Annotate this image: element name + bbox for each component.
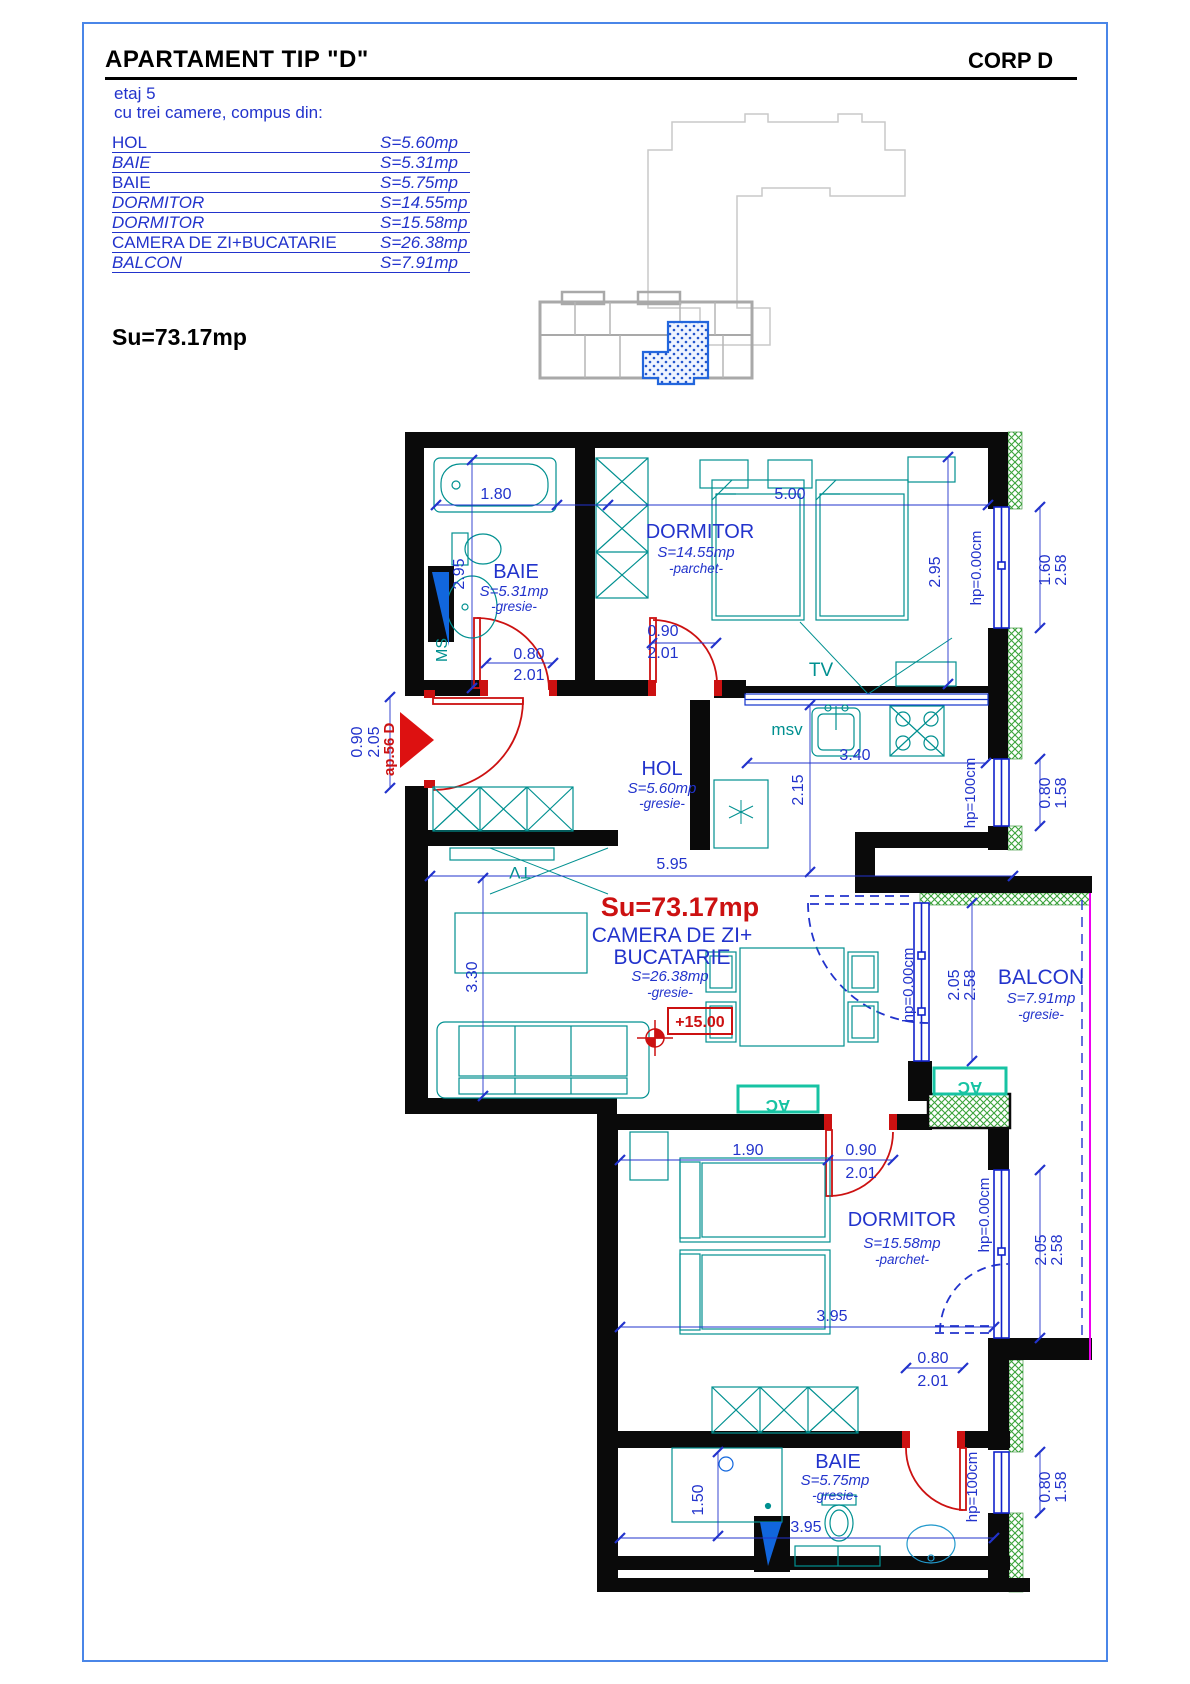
dim-label: 0.80 xyxy=(917,1350,948,1367)
beds-dormitor2 xyxy=(680,1158,830,1334)
key-plan-highlighted-unit xyxy=(643,322,708,384)
dim-label: 0.80 xyxy=(1037,1471,1054,1502)
hol-closet xyxy=(433,787,573,831)
dim-label: hp=0.00cm xyxy=(968,531,985,606)
kitchen-counter xyxy=(745,694,988,705)
kitchen-sink-label: msv xyxy=(771,720,803,739)
room-finish-living: -gresie- xyxy=(647,985,693,1000)
room-area-dormitor1: S=14.55mp xyxy=(657,544,734,561)
hatched-wall-block xyxy=(928,1094,1010,1128)
stove xyxy=(890,706,944,756)
room-name-baie1: BAIE xyxy=(493,561,539,583)
door-dormitor2 xyxy=(826,1130,893,1196)
room-name-living2: BUCATARIE xyxy=(613,946,730,969)
drawing-sheet: APARTAMENT TIP "D" CORP D etaj 5 cu trei… xyxy=(0,0,1190,1684)
dim-label: 5.95 xyxy=(656,856,687,873)
room-name-dormitor1: DORMITOR xyxy=(646,521,755,543)
dim-label: 2.58 xyxy=(1053,554,1070,585)
window-dormitor1 xyxy=(994,507,1009,628)
dim-label: 3.40 xyxy=(839,747,870,764)
dim-label: 2.05 xyxy=(1033,1234,1050,1265)
dim-label: 2.01 xyxy=(917,1373,948,1390)
dim-label: hp=0.00cm xyxy=(976,1178,993,1253)
room-area-dormitor2: S=15.58mp xyxy=(863,1235,940,1252)
dim-label: 1.80 xyxy=(480,486,511,503)
beds-dormitor1 xyxy=(712,480,908,620)
plan-total-area: Su=73.17mp xyxy=(601,892,759,922)
entry-door xyxy=(433,698,523,790)
tv-leader-lines xyxy=(800,622,952,694)
dim-label: 0.80 xyxy=(513,646,544,663)
door-baie2 xyxy=(906,1448,966,1510)
room-finish-dormitor2: -parchet- xyxy=(875,1252,930,1267)
dim-label: 5.00 xyxy=(774,486,805,503)
entry-arrow xyxy=(400,712,434,768)
room-name-baie2: BAIE xyxy=(815,1451,861,1473)
washing-machine-label: MS xyxy=(434,638,451,662)
bathtub xyxy=(434,458,556,512)
tv-cabinet-dormitor1 xyxy=(896,662,956,686)
room-area-living: S=26.38mp xyxy=(631,968,708,985)
tv-label-dormitor1: TV xyxy=(809,660,834,681)
dim-label: hp=100cm xyxy=(964,1452,981,1522)
window-baie2 xyxy=(994,1452,1009,1513)
dim-label: 2.15 xyxy=(790,774,807,805)
apartment-number-label: ap.56 D xyxy=(381,722,398,776)
dim-label: 2.01 xyxy=(845,1165,876,1182)
room-area-baie2: S=5.75mp xyxy=(801,1472,870,1489)
floor-plan-drawing: 1.80 5.00 2.95 2.95 0.90 2.01 0.80 2.01 … xyxy=(0,0,1190,1684)
ac-label-balcony: AC xyxy=(958,1078,983,1097)
room-name-hol: HOL xyxy=(641,758,682,780)
tv-stand-living xyxy=(450,848,554,860)
room-finish-baie2: -gresie- xyxy=(812,1488,858,1503)
ac-label-living: AC xyxy=(766,1096,791,1115)
dim-label: 2.01 xyxy=(513,667,544,684)
dim-label: 2.58 xyxy=(1049,1234,1066,1265)
dim-label: 3.30 xyxy=(464,961,481,992)
room-name-balcon: BALCON xyxy=(998,966,1084,989)
room-area-hol: S=5.60mp xyxy=(628,780,697,797)
nightstands-dormitor1 xyxy=(700,457,955,488)
dim-label: 1.50 xyxy=(690,1484,707,1515)
dim-label: 1.58 xyxy=(1053,1471,1070,1502)
wardrobe-dormitor1 xyxy=(596,458,648,598)
dim-label: 1.60 xyxy=(1037,554,1054,585)
dim-label: 2.01 xyxy=(647,645,678,662)
dim-label: 1.90 xyxy=(732,1142,763,1159)
tv-leader-living xyxy=(490,848,608,894)
key-plan xyxy=(540,114,905,384)
dim-label: 0.90 xyxy=(845,1142,876,1159)
dim-label: 0.90 xyxy=(349,726,366,757)
dim-label: 3.95 xyxy=(790,1519,821,1536)
tv-label-living: TV xyxy=(508,863,530,882)
dim-label: hp=100cm xyxy=(962,758,979,828)
room-finish-dormitor1: -parchet- xyxy=(669,561,724,576)
window-dormitor2 xyxy=(994,1170,1009,1338)
dim-label: 2.95 xyxy=(927,556,944,587)
key-plan-tower-outline xyxy=(648,114,905,345)
wardrobe-dormitor2 xyxy=(712,1387,858,1433)
room-name-dormitor2: DORMITOR xyxy=(848,1209,957,1231)
dim-label: 2.58 xyxy=(962,969,979,1000)
dresser-dormitor2 xyxy=(630,1132,668,1180)
dim-label: 3.95 xyxy=(816,1308,847,1325)
dim-label: hp=0.00cm xyxy=(900,948,917,1023)
level-value: +15.00 xyxy=(675,1014,724,1031)
dim-label: 0.80 xyxy=(1037,777,1054,808)
room-name-living: CAMERA DE ZI+ xyxy=(592,924,752,947)
shower-baie2 xyxy=(672,1448,782,1522)
dim-label: 1.58 xyxy=(1053,777,1070,808)
dim-label: 0.90 xyxy=(647,623,678,640)
window-kitchen xyxy=(994,759,1009,826)
dim-label: 2.95 xyxy=(451,558,468,589)
hol-duct-closet xyxy=(690,700,768,850)
room-area-balcon: S=7.91mp xyxy=(1007,990,1076,1007)
sofa xyxy=(437,1022,649,1098)
room-finish-baie1: -gresie- xyxy=(491,599,537,614)
room-finish-hol: -gresie- xyxy=(639,796,685,811)
dim-label: 2.05 xyxy=(946,969,963,1000)
room-finish-balcon: -gresie- xyxy=(1018,1007,1064,1022)
room-area-baie1: S=5.31mp xyxy=(480,583,549,600)
